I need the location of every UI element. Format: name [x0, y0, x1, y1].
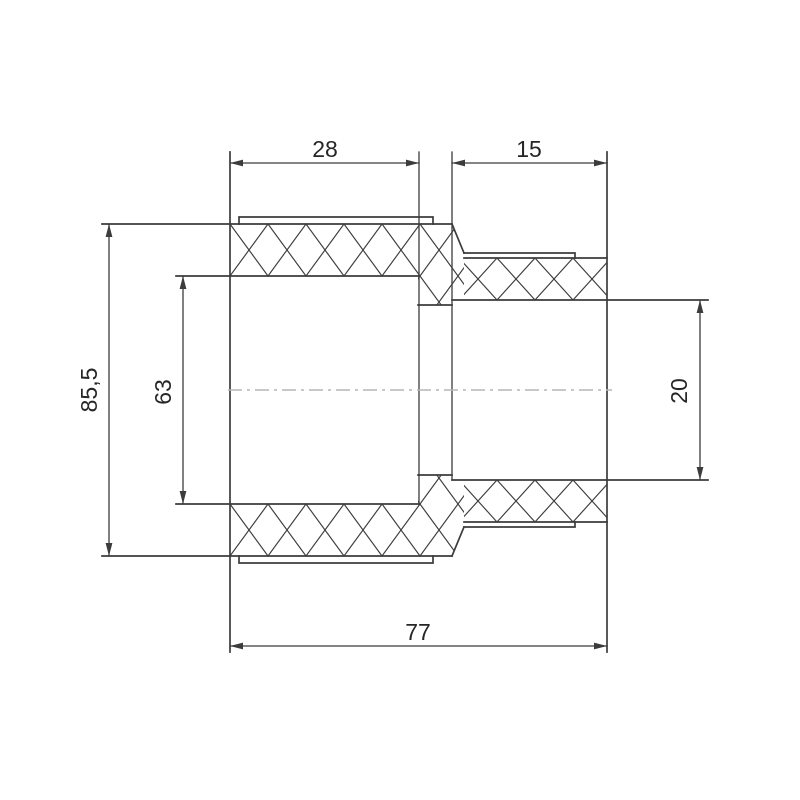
- arrowhead-left: [230, 643, 243, 650]
- dimension-right-bore-diameter: 20: [666, 300, 703, 480]
- inner-bores: [176, 152, 708, 505]
- drawing-page: 28 15 77 85,5 63: [0, 0, 800, 800]
- arrowhead-right: [406, 160, 419, 167]
- arrowhead-down: [180, 491, 187, 504]
- hatch-upper-large-wall: [230, 224, 464, 305]
- part-cross-section: [102, 152, 708, 652]
- arrowhead-up: [180, 276, 187, 289]
- dimension-label-63: 63: [150, 379, 176, 405]
- hatch-upper-small-wall: [464, 258, 607, 300]
- hatch-lower-small-wall: [464, 480, 607, 522]
- dimension-label-85-5: 85,5: [76, 368, 102, 413]
- dimension-left-socket-depth: 28: [230, 136, 419, 166]
- dimension-right-socket-depth: 15: [452, 136, 607, 166]
- arrowhead-up: [697, 300, 704, 313]
- arrowhead-right: [594, 643, 607, 650]
- arrowhead-down: [106, 543, 113, 556]
- dimension-label-20: 20: [666, 378, 692, 404]
- technical-drawing: 28 15 77 85,5 63: [0, 0, 800, 800]
- arrowhead-left: [452, 160, 465, 167]
- dimension-overall-length: 77: [230, 619, 607, 649]
- hatch-lower-large-wall: [230, 475, 464, 556]
- arrowhead-up: [106, 224, 113, 237]
- dimension-left-bore-diameter: 63: [150, 276, 186, 504]
- dimension-label-15: 15: [516, 136, 542, 162]
- dimension-label-28: 28: [312, 136, 338, 162]
- arrowhead-right: [594, 160, 607, 167]
- arrowhead-left: [230, 160, 243, 167]
- arrowhead-down: [697, 467, 704, 480]
- dimension-label-77: 77: [405, 619, 431, 645]
- dimension-body-outer-diameter: 85,5: [76, 224, 112, 556]
